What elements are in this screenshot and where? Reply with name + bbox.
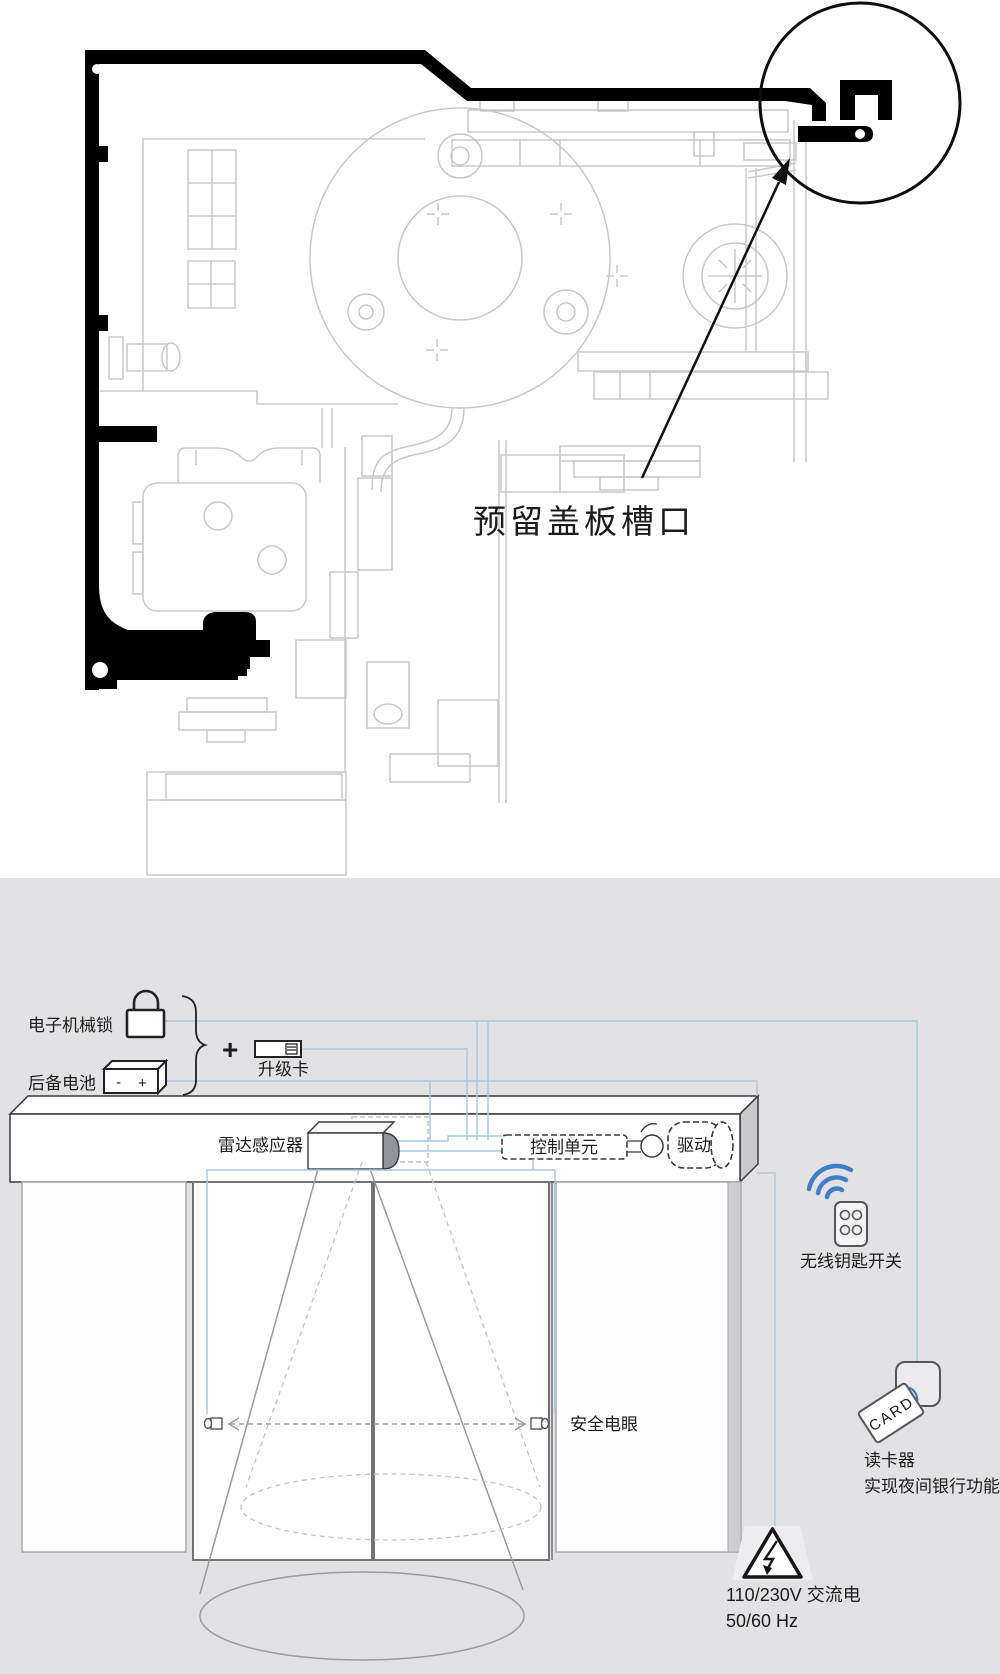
photocell-label: 安全电眼 <box>570 1415 638 1434</box>
control-unit-box: 控制单元 <box>502 1135 644 1159</box>
detail-circle <box>760 3 960 203</box>
control-unit-label: 控制单元 <box>530 1138 598 1157</box>
slot-hook-left <box>785 88 826 121</box>
callout-arrow <box>642 158 790 478</box>
radar-label: 雷达感应器 <box>218 1136 303 1155</box>
card-reader-label: 读卡器 <box>864 1451 915 1470</box>
door-sliding-left <box>193 1182 372 1560</box>
upgrade-card-group: 升级卡 <box>255 1041 309 1079</box>
radar-sensor-icon <box>308 1133 383 1169</box>
drive-pulley-icon <box>641 1135 663 1157</box>
door-fixed-left <box>22 1182 186 1552</box>
cross-section-diagram: 预留盖板槽口 <box>0 0 1000 878</box>
mechanism-linework <box>100 100 828 875</box>
lock-label: 电子机械锁 <box>28 1016 113 1035</box>
door-panels <box>22 1182 749 1560</box>
rail-top-face <box>10 1096 758 1114</box>
upgrade-card-label: 升级卡 <box>258 1060 309 1079</box>
battery-label: 后备电池 <box>28 1074 96 1093</box>
photocell-right-icon <box>531 1418 542 1429</box>
installation-diagram: 控制单元 驱动 雷达感应器 <box>0 878 1000 1674</box>
wireless-key-label: 无线钥匙开关 <box>800 1252 902 1271</box>
door-sliding-right <box>374 1182 549 1560</box>
battery-icon <box>104 1069 158 1093</box>
callout-label: 预留盖板槽口 <box>473 503 695 540</box>
power-voltage-label: 110/230V 交流电 <box>726 1585 861 1605</box>
battery-minus: - <box>116 1074 121 1091</box>
power-frequency-label: 50/60 Hz <box>726 1611 798 1631</box>
battery-plus: + <box>138 1075 147 1092</box>
plus-sign: + <box>222 1034 238 1065</box>
profile-notch-top <box>92 64 102 74</box>
photocell-left-icon <box>211 1418 222 1429</box>
drive-label: 驱动 <box>677 1136 711 1155</box>
slot-notch <box>855 129 865 139</box>
profile-notch <box>92 662 108 678</box>
slot-hook-right <box>840 80 892 120</box>
night-bank-label: 实现夜间银行功能 <box>864 1477 1000 1496</box>
door-fixed-right <box>556 1182 741 1552</box>
door-side-edge <box>728 1182 741 1552</box>
remote-icon <box>835 1202 867 1246</box>
